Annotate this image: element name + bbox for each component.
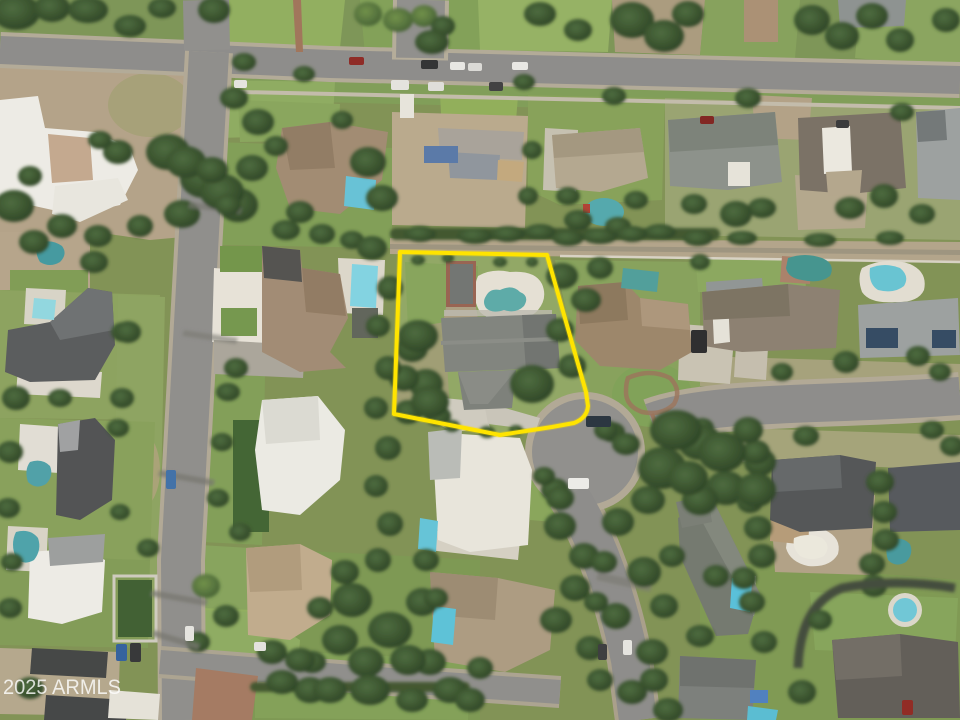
- svg-text:2025 ARMLS: 2025 ARMLS: [3, 676, 121, 699]
